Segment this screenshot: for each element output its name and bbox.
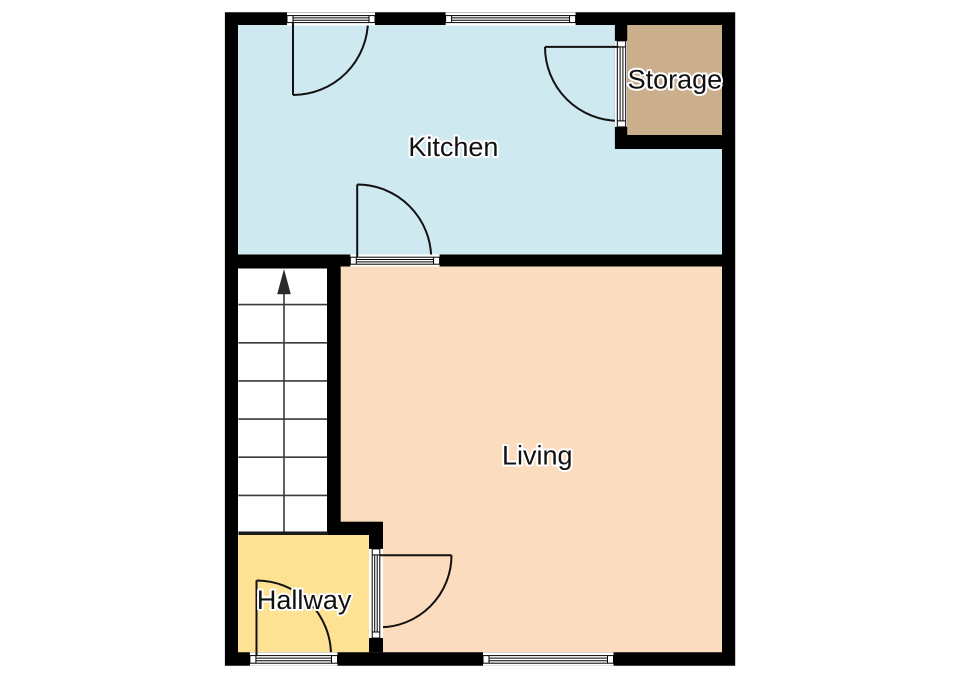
svg-text:Kitchen: Kitchen [408,132,498,162]
svg-text:Hallway: Hallway [257,585,352,615]
svg-text:Storage: Storage [628,64,723,94]
svg-text:Living: Living [502,440,573,470]
